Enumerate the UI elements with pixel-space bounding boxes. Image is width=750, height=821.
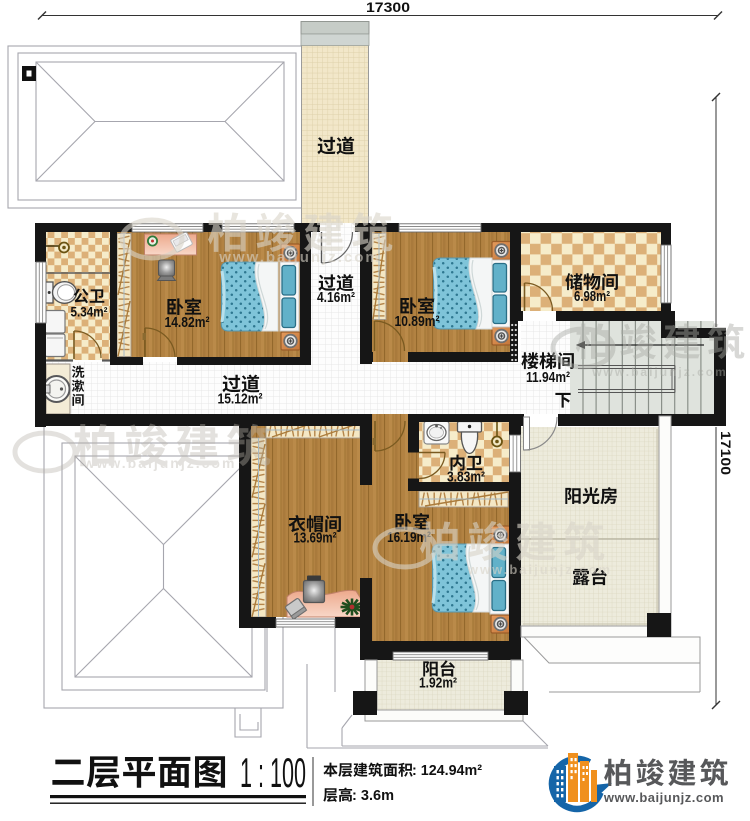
- svg-text:1.92m²: 1.92m²: [419, 676, 457, 692]
- svg-text:11.94m²: 11.94m²: [526, 369, 570, 386]
- svg-text:: 3.6m: : 3.6m: [352, 787, 394, 804]
- svg-text:www.baijunjz.com: www.baijunjz.com: [467, 562, 612, 577]
- svg-text:17100: 17100: [718, 431, 733, 475]
- svg-text:15.12m²: 15.12m²: [218, 391, 263, 408]
- svg-text:5.34m²: 5.34m²: [71, 304, 108, 320]
- svg-text:1 : 100: 1 : 100: [240, 749, 306, 796]
- svg-text:14.82m²: 14.82m²: [165, 314, 210, 331]
- svg-text:: 124.94m²: : 124.94m²: [412, 762, 482, 779]
- svg-text:www.baijunjz.com: www.baijunjz.com: [603, 790, 724, 805]
- svg-text:www.baijunjz.com: www.baijunjz.com: [591, 365, 728, 379]
- svg-text:17300: 17300: [366, 0, 410, 15]
- svg-text:www.baijunjz.com: www.baijunjz.com: [83, 455, 237, 471]
- svg-text:10.89m²: 10.89m²: [395, 313, 440, 330]
- svg-text:13.69m²: 13.69m²: [294, 530, 337, 547]
- svg-text:6.98m²: 6.98m²: [574, 289, 610, 305]
- svg-text:4.16m²: 4.16m²: [317, 290, 355, 306]
- svg-text:www.baijunjz.com: www.baijunjz.com: [218, 249, 380, 266]
